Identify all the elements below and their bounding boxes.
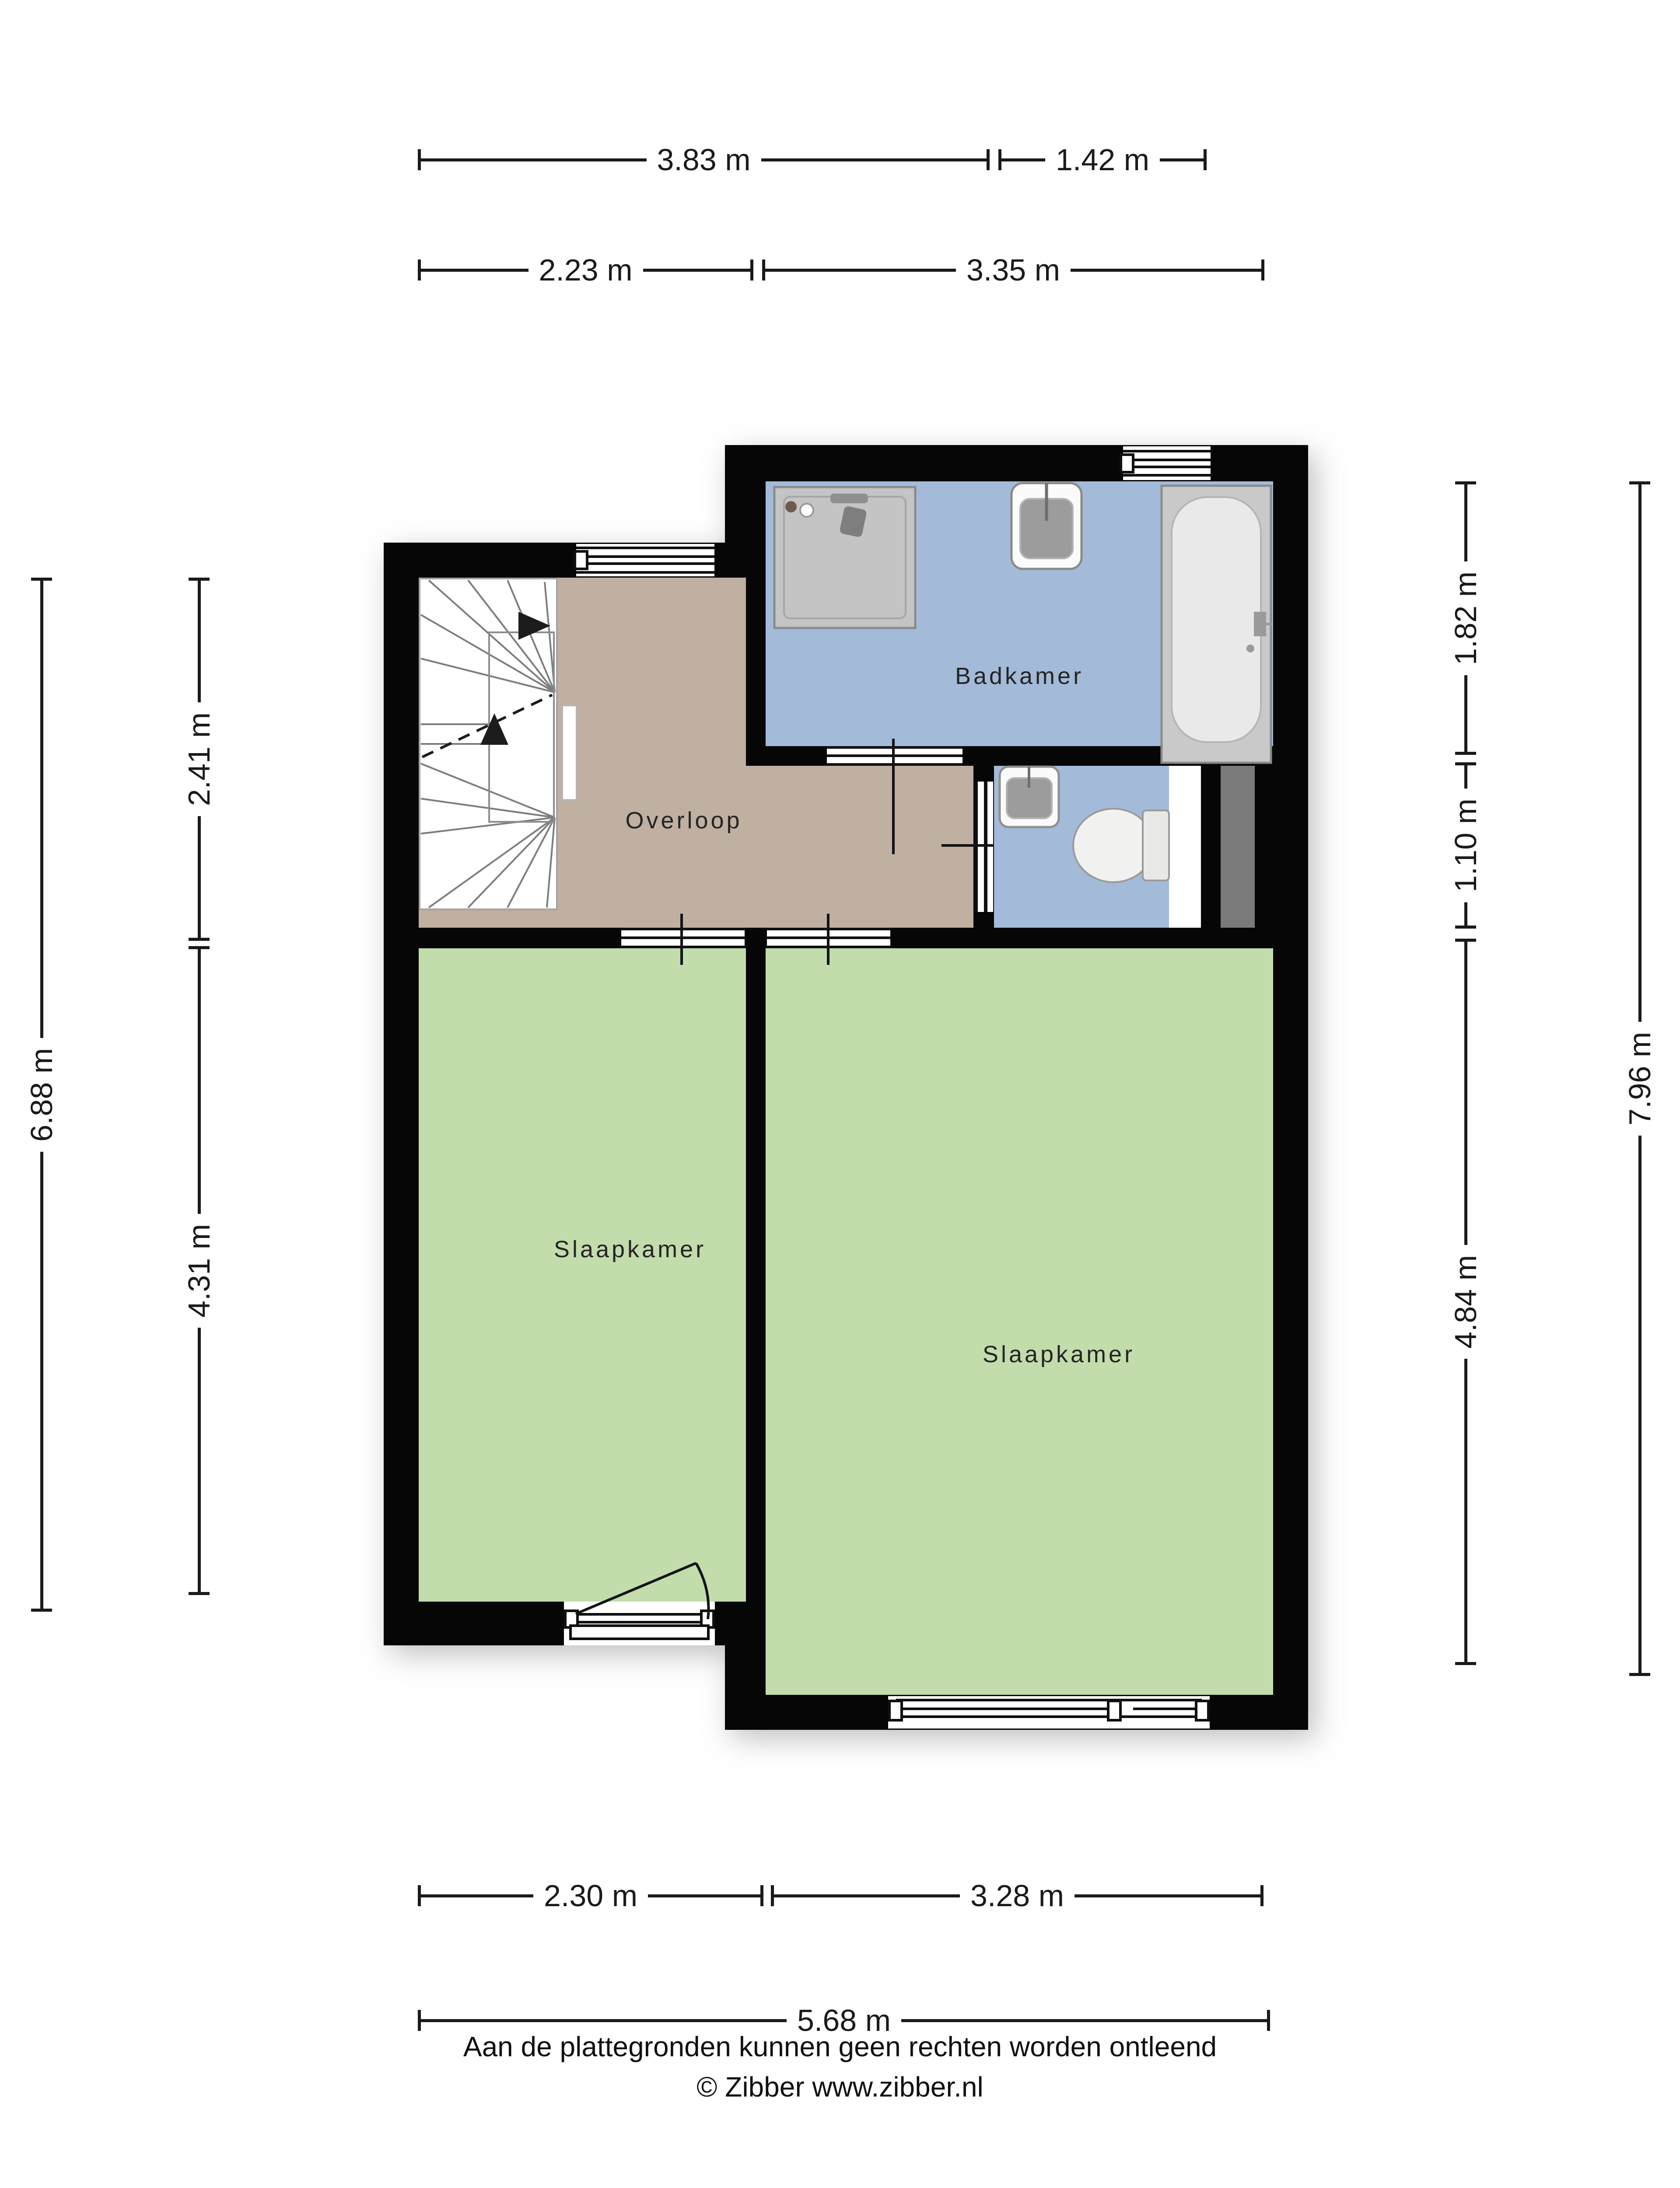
room-label-badkamer: Badkamer — [955, 663, 1084, 690]
room-label-slaapkamer-right: Slaapkamer — [983, 1341, 1135, 1368]
door-marks — [576, 739, 994, 1619]
floorplan-page: { "rooms": { "badkamer": "Badkamer", "ov… — [0, 0, 1680, 2188]
disclaimer-text: Aan de plattegronden kunnen geen rechten… — [0, 2030, 1680, 2063]
room-label-slaapkamer-left: Slaapkamer — [554, 1236, 706, 1263]
toilet-icon — [1000, 767, 1169, 882]
room-label-overloop: Overloop — [625, 807, 742, 834]
copyright-text: © Zibber www.zibber.nl — [0, 2071, 1680, 2103]
bathtub-icon — [1162, 486, 1271, 763]
sink-icon — [1011, 483, 1081, 569]
shower-icon — [774, 487, 915, 628]
plan-details — [0, 0, 1680, 2188]
stairs-walkline — [422, 612, 552, 757]
